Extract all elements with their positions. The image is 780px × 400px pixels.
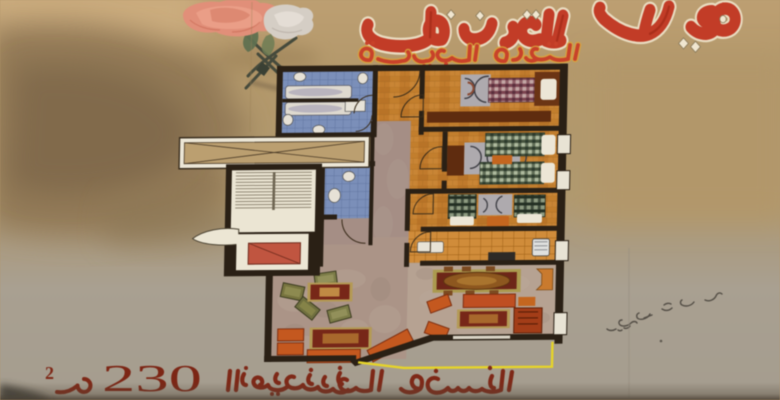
svg-text:2: 2 [45, 363, 54, 383]
